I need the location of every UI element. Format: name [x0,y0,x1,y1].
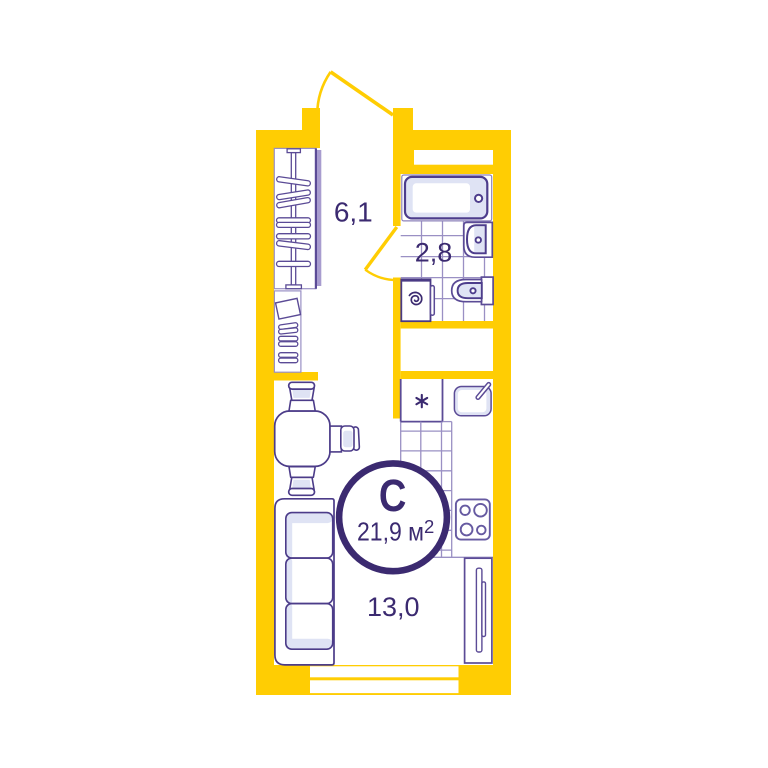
svg-text:2: 2 [424,516,434,537]
svg-text:13,0: 13,0 [367,592,420,622]
svg-text:2,8: 2,8 [415,238,453,268]
svg-text:С: С [379,470,407,521]
svg-text:6,1: 6,1 [334,196,373,227]
svg-text:21,9 м: 21,9 м [357,517,424,547]
